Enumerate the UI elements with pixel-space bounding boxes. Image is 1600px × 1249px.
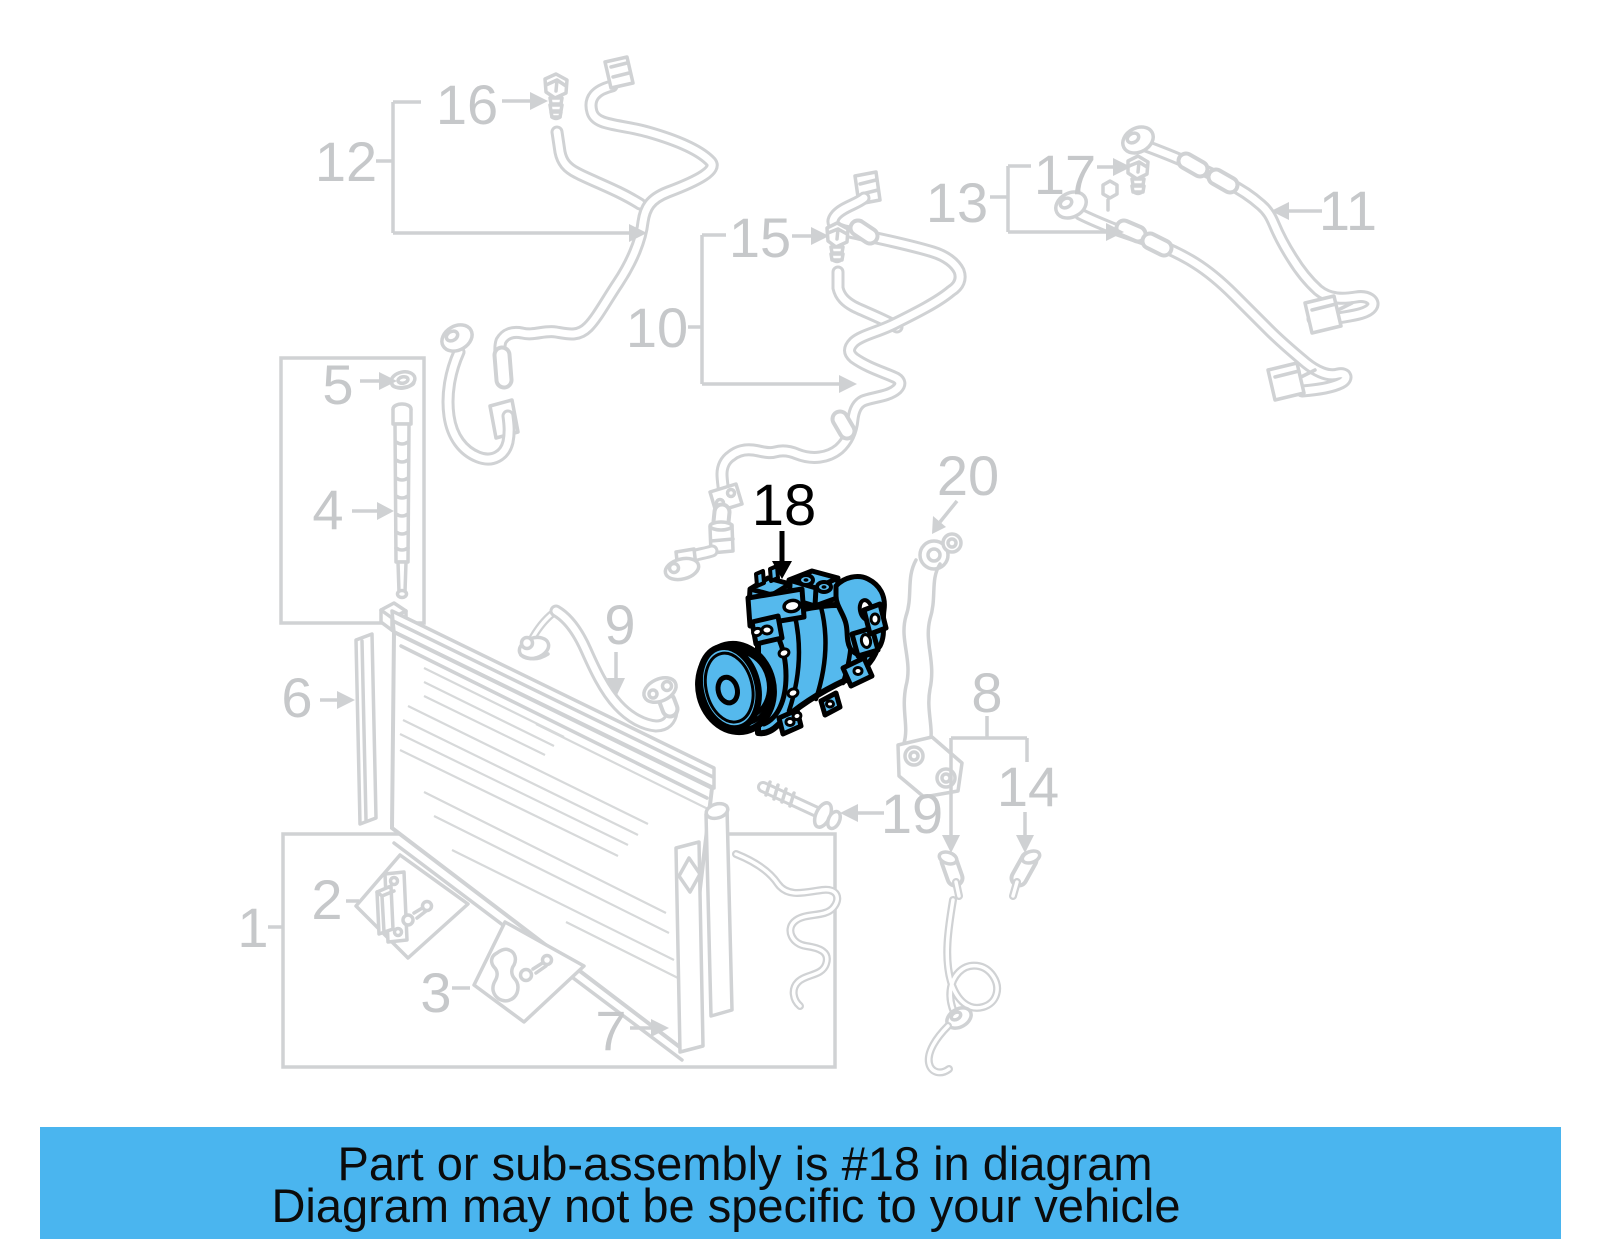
svg-text:12: 12 xyxy=(315,130,377,193)
svg-text:11: 11 xyxy=(1319,179,1377,242)
svg-text:4: 4 xyxy=(312,478,343,541)
svg-text:18: 18 xyxy=(752,473,817,538)
svg-text:16: 16 xyxy=(436,73,498,136)
svg-text:9: 9 xyxy=(604,593,635,656)
svg-text:3: 3 xyxy=(420,961,451,1024)
svg-text:Diagram may not be specific to: Diagram may not be specific to your vehi… xyxy=(271,1179,1180,1232)
svg-text:10: 10 xyxy=(626,296,688,359)
svg-text:15: 15 xyxy=(729,206,791,269)
svg-text:14: 14 xyxy=(997,755,1059,818)
svg-text:5: 5 xyxy=(322,353,353,416)
svg-text:20: 20 xyxy=(937,444,999,507)
svg-text:1: 1 xyxy=(237,896,268,959)
svg-text:2: 2 xyxy=(311,868,342,931)
svg-text:7: 7 xyxy=(595,999,626,1062)
svg-text:17: 17 xyxy=(1034,143,1096,206)
svg-text:13: 13 xyxy=(926,171,988,234)
svg-text:6: 6 xyxy=(281,666,312,729)
svg-text:19: 19 xyxy=(881,782,943,845)
svg-text:8: 8 xyxy=(971,661,1002,724)
